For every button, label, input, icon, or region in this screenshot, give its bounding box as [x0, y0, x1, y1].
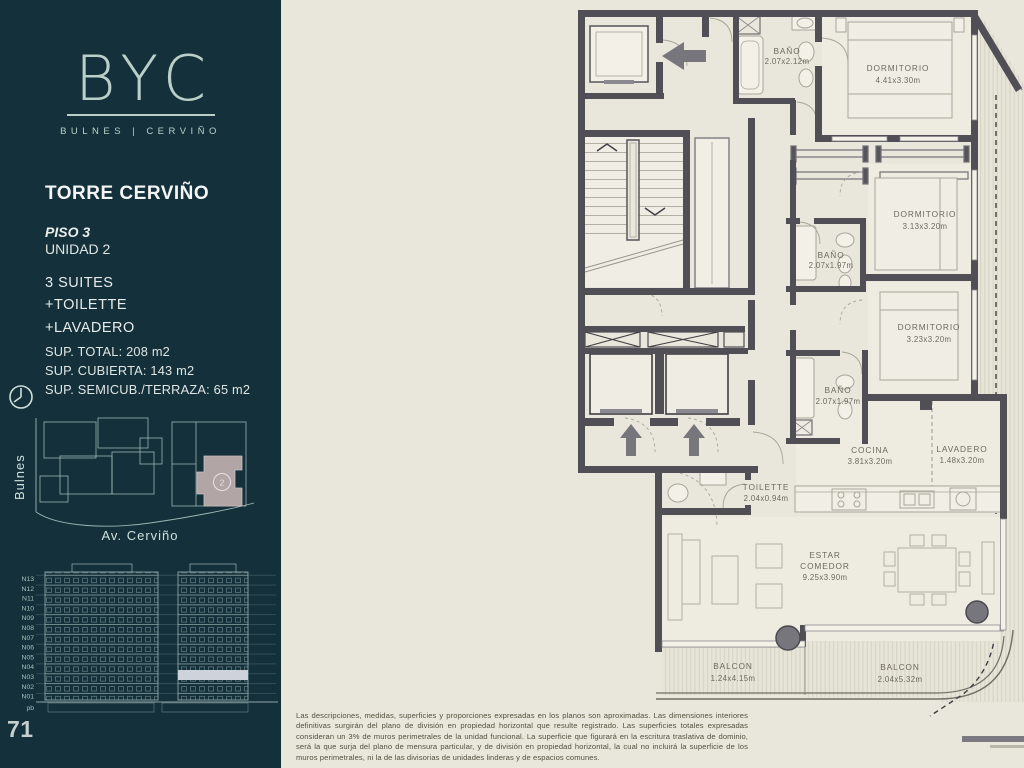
floor-label: N08 — [22, 625, 35, 632]
building-elevation: N13 N12 N11 N10 N09 N08 N07 N06 N05 N04 … — [0, 556, 281, 718]
floor-label: PISO 3 — [45, 224, 209, 240]
feature-item: 3 SUITES — [45, 272, 135, 294]
logo-text: BYC — [8, 48, 281, 110]
room-label-bano-2: BAÑO — [817, 250, 844, 260]
room-label-cocina: COCINA — [851, 445, 889, 455]
floor-label: N10 — [22, 605, 35, 612]
room-dims-bano-2: 2.07x1.97m — [809, 261, 854, 270]
room-dims-dorm-1: 4.41x3.30m — [876, 76, 921, 85]
room-label-balcon-2: BALCON — [880, 662, 920, 672]
room-dims-balcon-2: 2.04x5.32m — [878, 675, 923, 684]
features-list: 3 SUITES +TOILETTE +LAVADERO — [45, 272, 135, 339]
room-dims-dorm-2: 3.13x3.20m — [903, 222, 948, 231]
unit-label: UNIDAD 2 — [45, 241, 209, 257]
unit-badge: 2 — [220, 478, 225, 488]
page-number: 71 — [7, 716, 34, 743]
room-dims-cocina: 3.81x3.20m — [848, 457, 893, 466]
floor-label: N03 — [22, 674, 35, 681]
project-block: TORRE CERVIÑO PISO 3 UNIDAD 2 — [45, 183, 209, 257]
room-label-comedor: COMEDOR — [800, 561, 850, 571]
street-label-cervino: Av. Cerviño — [102, 528, 179, 543]
room-dims-bano-3: 2.07x1.97m — [816, 397, 861, 406]
elevator-up-arrow-icon — [620, 424, 642, 456]
project-title: TORRE CERVIÑO — [45, 183, 209, 205]
room-dims-dorm-3: 3.23x3.20m — [907, 335, 952, 344]
column — [776, 626, 800, 650]
room-label-dorm-2: DORMITORIO — [894, 209, 957, 219]
room-label-bano-1: BAÑO — [773, 46, 800, 56]
floor-label: N01 — [22, 694, 35, 701]
site-map: 2 Bulnes Av. Cerviño — [0, 412, 281, 552]
areas-list: SUP. TOTAL: 208 m2 SUP. CUBIERTA: 143 m2… — [45, 342, 250, 400]
floor-label: N06 — [22, 645, 35, 652]
entrance-arrow-icon — [662, 42, 706, 70]
logo-subtitle: BULNES | CERVIÑO — [0, 126, 281, 137]
room-label-balcon-1: BALCON — [713, 661, 753, 671]
room-label-estar: ESTAR — [809, 550, 841, 560]
street-label-bulnes: Bulnes — [12, 454, 27, 500]
room-dims-lavadero: 1.48x3.20m — [940, 456, 985, 465]
elevation-towers — [36, 564, 278, 712]
compass-icon — [8, 383, 36, 411]
floor-label: N11 — [22, 596, 34, 603]
room-dims-estar: 9.25x3.90m — [803, 573, 848, 582]
column — [966, 601, 988, 623]
elevator-up-arrow-icon — [683, 424, 705, 456]
floor-plan: BAÑO 2.07x2.12m DORMITORIO 4.41x3.30m DO… — [281, 0, 1024, 768]
room-dims-toilette: 2.04x0.94m — [744, 494, 789, 503]
floor-label: N07 — [22, 635, 35, 642]
room-label-dorm-3: DORMITORIO — [898, 322, 961, 332]
brand-logo: BYC BULNES | CERVIÑO — [0, 48, 281, 137]
floor-label: N13 — [22, 576, 35, 583]
floor-label: N05 — [22, 654, 35, 661]
room-dims-balcon-1: 1.24x4.15m — [711, 674, 756, 683]
area-item: SUP. SEMICUB./TERRAZA: 65 m2 — [45, 380, 250, 399]
elevation-floor-labels: N13 N12 N11 N10 N09 N08 N07 N06 N05 N04 … — [22, 576, 35, 712]
floor-label: pb — [26, 705, 34, 712]
sidebar: BYC BULNES | CERVIÑO TORRE CERVIÑO PISO … — [0, 0, 281, 768]
feature-item: +TOILETTE — [45, 294, 135, 316]
room-label-lavadero: LAVADERO — [936, 444, 987, 454]
floor-label: N02 — [22, 684, 35, 691]
brochure-page: BYC BULNES | CERVIÑO TORRE CERVIÑO PISO … — [0, 0, 1024, 768]
feature-item: +LAVADERO — [45, 317, 135, 339]
floor-label: N04 — [22, 664, 35, 671]
floor-label: N09 — [22, 615, 35, 622]
area-item: SUP. CUBIERTA: 143 m2 — [45, 361, 250, 380]
room-dims-bano-1: 2.07x2.12m — [765, 57, 810, 66]
room-label-toilette: TOILETTE — [743, 482, 790, 492]
room-label-bano-3: BAÑO — [824, 385, 851, 395]
area-item: SUP. TOTAL: 208 m2 — [45, 342, 250, 361]
room-label-dorm-1: DORMITORIO — [867, 63, 930, 73]
legal-disclaimer: Las descripciones, medidas, superficies … — [296, 711, 748, 763]
floor-label: N12 — [22, 586, 35, 593]
highlighted-floor-bar — [178, 670, 248, 680]
